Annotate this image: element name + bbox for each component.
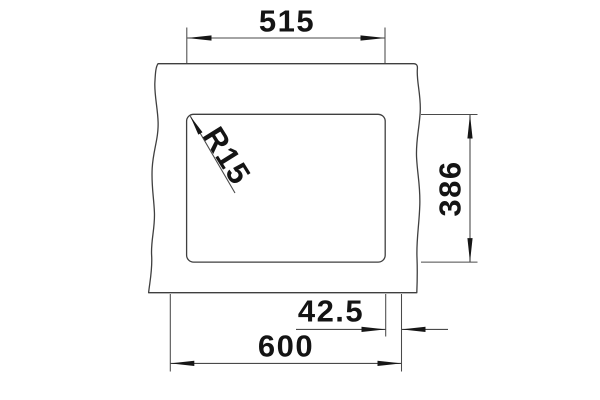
dim-386-arrow-bottom xyxy=(467,238,472,262)
dim-edge-offset: 42.5 xyxy=(296,294,448,337)
sink-cutout-drawing: 515 386 R15 42.5 xyxy=(0,0,600,400)
dim-42-arrow-right xyxy=(402,327,426,332)
dim-600-arrow-left xyxy=(170,361,194,366)
dim-cutout-width: 515 xyxy=(187,4,385,64)
dim-515-label: 515 xyxy=(259,4,315,39)
dim-386-arrow-top xyxy=(467,115,472,139)
dim-600-label: 600 xyxy=(258,329,314,364)
dim-42-arrow-left xyxy=(362,327,386,332)
technical-drawing-canvas: 515 386 R15 42.5 xyxy=(0,0,600,400)
dim-cutout-depth: 386 xyxy=(421,115,478,263)
dim-386-label: 386 xyxy=(433,160,468,216)
dim-overall-width: 600 xyxy=(170,294,401,372)
dim-600-arrow-right xyxy=(378,361,402,366)
dim-515-arrow-left xyxy=(187,35,212,40)
dim-42-label: 42.5 xyxy=(298,294,364,329)
dim-515-arrow-right xyxy=(361,35,386,40)
